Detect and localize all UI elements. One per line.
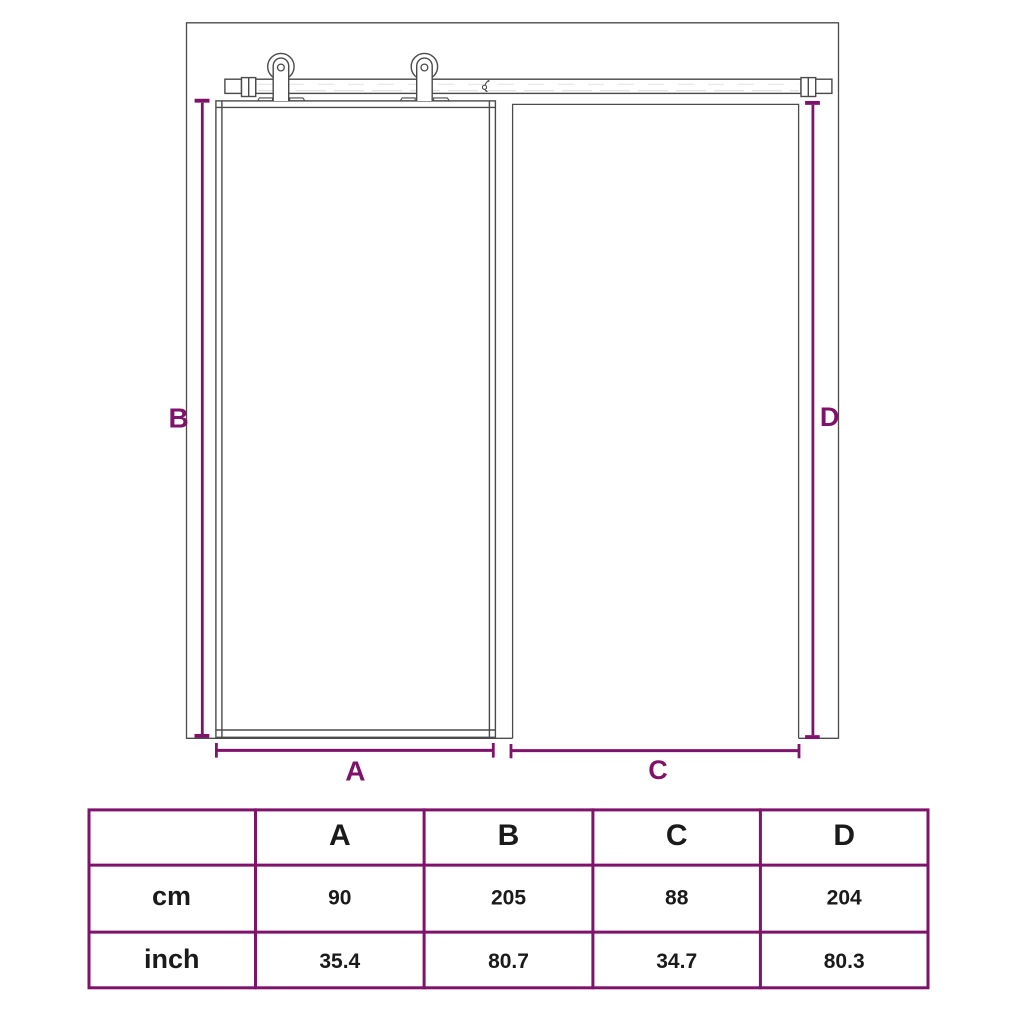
- svg-text:204: 204: [827, 887, 862, 910]
- svg-text:A: A: [329, 819, 351, 852]
- svg-text:B: B: [168, 403, 188, 434]
- svg-text:35.4: 35.4: [319, 950, 360, 973]
- svg-text:88: 88: [665, 887, 689, 910]
- svg-text:C: C: [648, 755, 668, 785]
- svg-text:A: A: [345, 756, 365, 787]
- svg-text:cm: cm: [152, 881, 191, 911]
- svg-text:80.7: 80.7: [488, 950, 529, 973]
- svg-text:34.7: 34.7: [656, 950, 697, 973]
- svg-text:90: 90: [328, 887, 351, 910]
- svg-text:C: C: [666, 819, 688, 852]
- svg-text:D: D: [833, 819, 855, 852]
- svg-text:80.3: 80.3: [824, 950, 865, 973]
- svg-text:205: 205: [491, 887, 526, 910]
- svg-text:D: D: [820, 402, 840, 432]
- svg-text:B: B: [498, 819, 520, 852]
- svg-text:inch: inch: [144, 944, 200, 974]
